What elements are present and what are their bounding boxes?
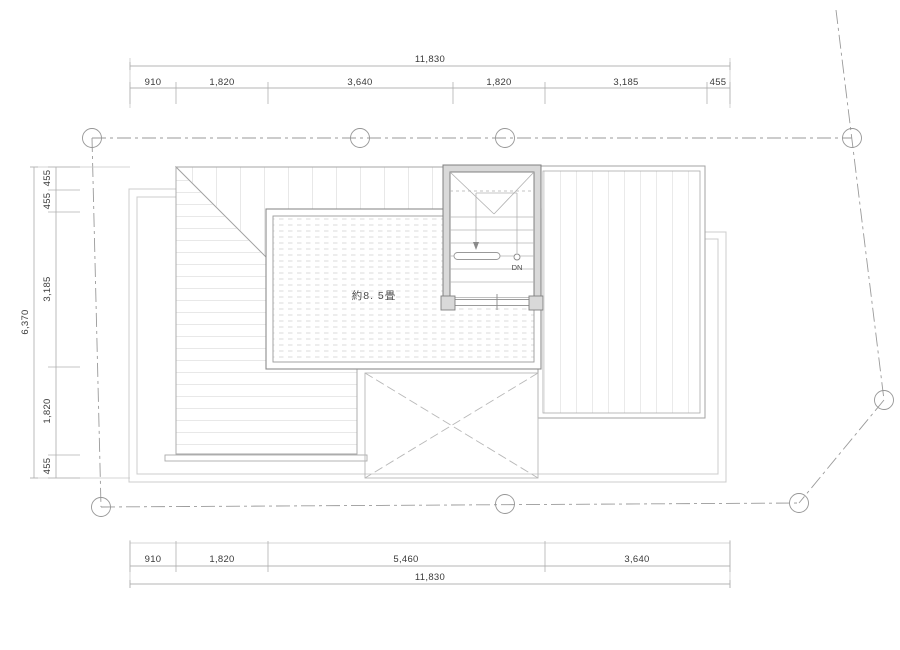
floor-plan-canvas: 約8. 5畳	[0, 0, 900, 650]
stair-down-label: DN	[512, 263, 523, 272]
roof-opening	[365, 373, 538, 478]
room-area-label: 約8. 5畳	[352, 289, 397, 302]
stair-wall-nub-right	[529, 296, 543, 310]
dimension-left: 6,370 455 455 3,185 1,820 455	[20, 167, 130, 478]
deck-inner-border	[543, 171, 700, 413]
dim-total-label: 11,830	[415, 54, 445, 65]
dim-segment-label: 3,185	[613, 77, 638, 88]
boundary-marker-icon	[496, 495, 515, 514]
dim-segment-label: 3,640	[624, 554, 649, 565]
stairwell: DN	[441, 165, 543, 310]
dim-segment-label: 455	[42, 193, 53, 210]
floor-plan-page: 約8. 5畳	[0, 0, 900, 650]
dim-segment-label: 455	[710, 77, 727, 88]
dim-segment-label: 1,820	[42, 398, 53, 423]
dim-segment-label: 1,820	[486, 77, 511, 88]
dim-segment-label: 910	[145, 77, 162, 88]
dim-segment-label: 3,640	[347, 77, 372, 88]
dim-segment-label: 455	[42, 458, 53, 475]
dim-segment-label: 5,460	[393, 554, 418, 565]
dimension-bottom: 910 1,820 5,460 3,640 11,830	[130, 540, 730, 588]
dim-segment-label: 1,820	[209, 77, 234, 88]
site-boundary-west	[92, 138, 101, 507]
stair-handrail	[454, 253, 500, 260]
dim-segment-label: 1,820	[209, 554, 234, 565]
roof-edge-slab	[165, 455, 367, 461]
dim-segment-ticks	[48, 167, 80, 478]
dim-segment-label: 910	[145, 554, 162, 565]
site-boundary-southeast	[799, 400, 884, 503]
deck-region	[538, 166, 705, 418]
stair-newel-post	[514, 254, 520, 260]
dim-segment-label: 455	[42, 170, 53, 187]
stair-wall-nub-left	[441, 296, 455, 310]
dim-total-label: 6,370	[20, 309, 31, 334]
dim-segment-label: 3,185	[42, 276, 53, 301]
dimension-top: 11,830 910 1,820 3,640 1,820 3,185 455	[130, 54, 730, 108]
dim-total-label: 11,830	[415, 572, 445, 583]
site-boundary-south	[101, 503, 799, 507]
site-boundary-east	[836, 10, 884, 400]
